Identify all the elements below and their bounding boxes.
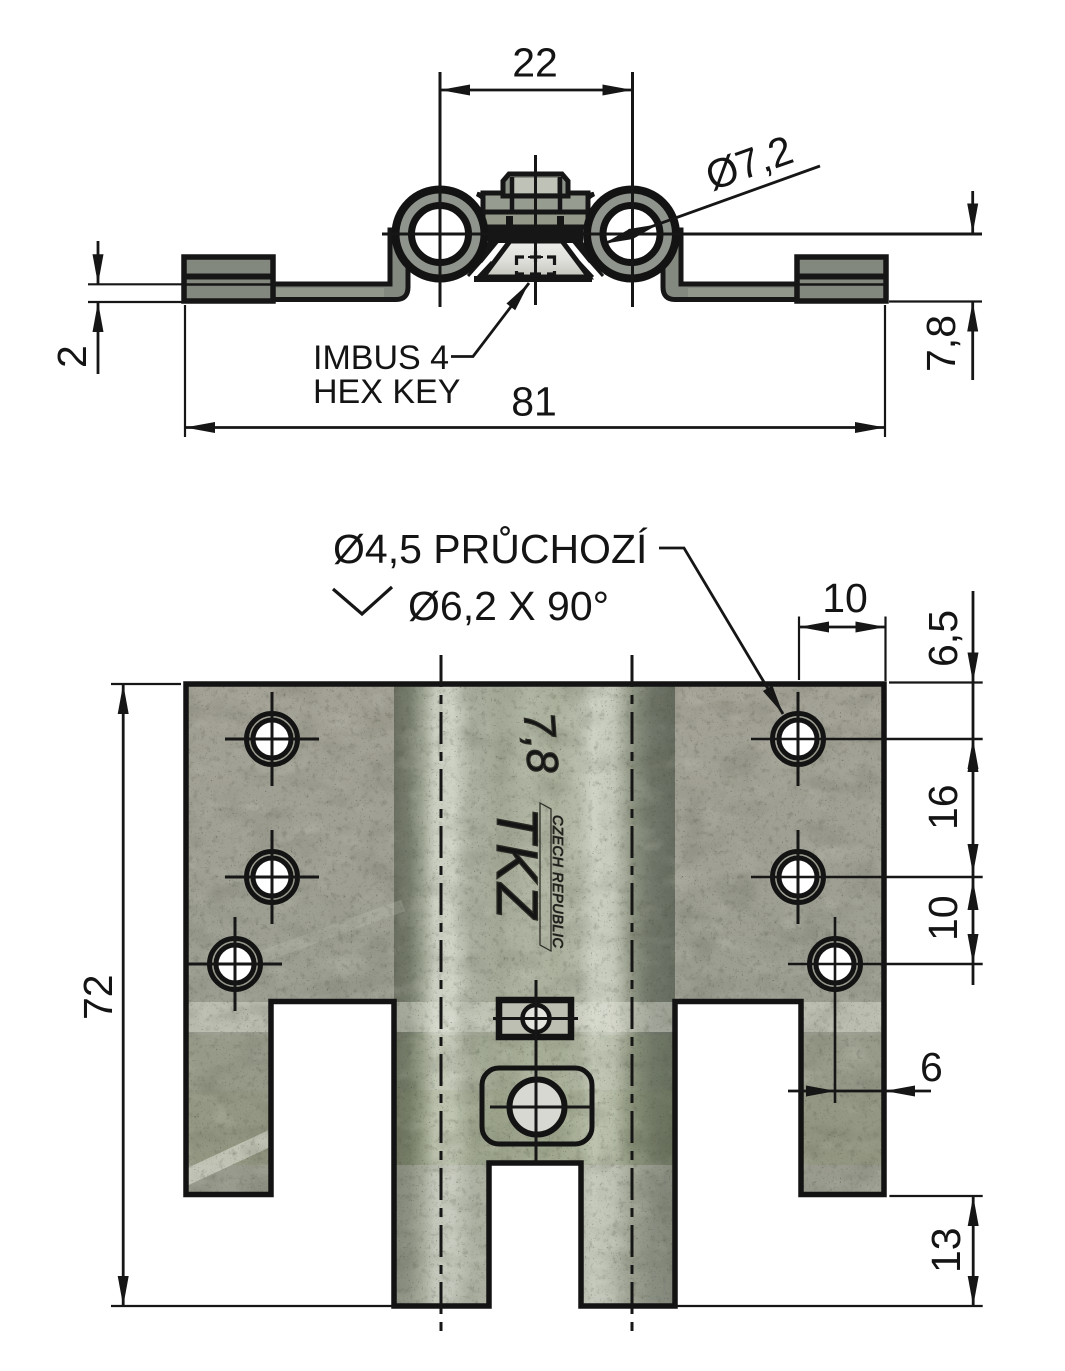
svg-text:7,8: 7,8 bbox=[514, 710, 567, 775]
svg-text:6: 6 bbox=[920, 1044, 943, 1090]
svg-text:TKZ: TKZ bbox=[484, 807, 549, 921]
svg-text:72: 72 bbox=[75, 974, 121, 1020]
svg-text:HEX KEY: HEX KEY bbox=[313, 373, 460, 411]
svg-text:6,5: 6,5 bbox=[920, 610, 966, 667]
svg-text:13: 13 bbox=[923, 1227, 969, 1273]
svg-text:22: 22 bbox=[512, 40, 558, 86]
svg-text:81: 81 bbox=[511, 379, 557, 425]
svg-text:16: 16 bbox=[920, 784, 966, 830]
svg-text:Ø6,2 X 90°: Ø6,2 X 90° bbox=[408, 583, 609, 629]
svg-text:10: 10 bbox=[920, 895, 966, 941]
svg-text:Ø4,5 PRŮCHOZÍ: Ø4,5 PRŮCHOZÍ bbox=[333, 525, 648, 572]
svg-text:IMBUS 4: IMBUS 4 bbox=[313, 339, 449, 377]
svg-text:10: 10 bbox=[822, 575, 868, 621]
svg-text:2: 2 bbox=[49, 345, 95, 368]
svg-text:CZECH REPUBLIC: CZECH REPUBLIC bbox=[549, 815, 565, 949]
svg-text:7,8: 7,8 bbox=[918, 315, 964, 372]
